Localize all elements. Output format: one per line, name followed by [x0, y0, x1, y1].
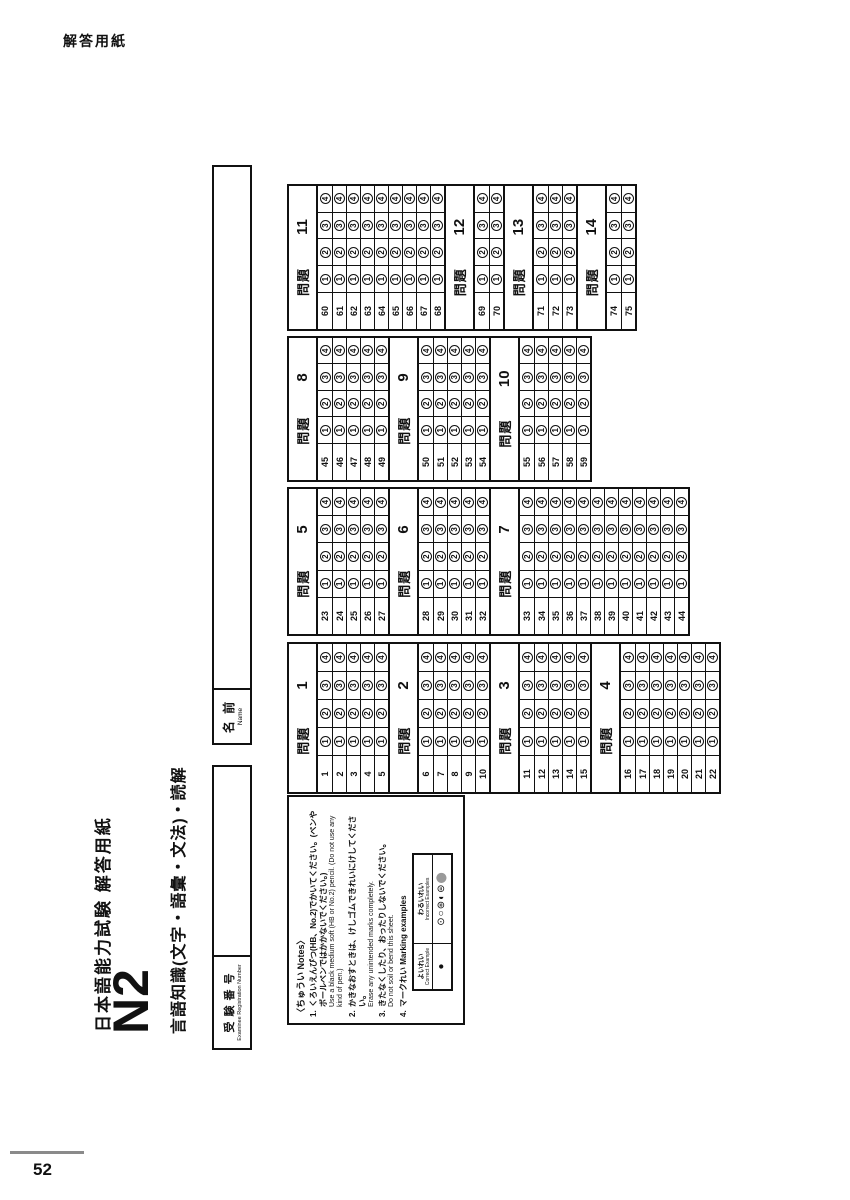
answer-bubble-q65-opt1[interactable]: 1	[389, 265, 402, 292]
answer-bubble-q2-opt4[interactable]: 4	[333, 644, 346, 671]
answer-bubble-q1-opt2[interactable]: 2	[318, 699, 332, 727]
answer-bubble-q16-opt3[interactable]: 3	[621, 671, 635, 699]
answer-bubble-q20-opt4[interactable]: 4	[678, 644, 691, 671]
answer-bubble-q32-opt4[interactable]: 4	[476, 489, 489, 515]
answer-bubble-q3-opt4[interactable]: 4	[347, 644, 360, 671]
answer-bubble-q55-opt3[interactable]: 3	[520, 364, 534, 391]
answer-bubble-q70-opt4[interactable]: 4	[490, 186, 503, 212]
answer-bubble-q26-opt4[interactable]: 4	[361, 489, 374, 515]
answer-bubble-q30-opt3[interactable]: 3	[448, 515, 461, 542]
answer-bubble-q32-opt2[interactable]: 2	[476, 543, 489, 570]
answer-bubble-q66-opt3[interactable]: 3	[403, 212, 416, 239]
answer-bubble-q50-opt2[interactable]: 2	[419, 390, 433, 417]
answer-bubble-q21-opt2[interactable]: 2	[692, 699, 705, 727]
answer-bubble-q29-opt4[interactable]: 4	[434, 489, 447, 515]
answer-bubble-q59-opt3[interactable]: 3	[577, 364, 590, 391]
answer-bubble-q71-opt3[interactable]: 3	[534, 212, 548, 239]
answer-bubble-q24-opt2[interactable]: 2	[333, 543, 346, 570]
answer-bubble-q71-opt2[interactable]: 2	[534, 239, 548, 266]
answer-bubble-q52-opt2[interactable]: 2	[448, 390, 461, 417]
answer-bubble-q45-opt3[interactable]: 3	[318, 364, 332, 391]
answer-bubble-q15-opt1[interactable]: 1	[577, 727, 590, 755]
answer-bubble-q68-opt1[interactable]: 1	[431, 265, 444, 292]
answer-bubble-q17-opt1[interactable]: 1	[636, 727, 649, 755]
answer-bubble-q4-opt4[interactable]: 4	[361, 644, 374, 671]
answer-bubble-q34-opt3[interactable]: 3	[535, 515, 548, 542]
answer-bubble-q41-opt2[interactable]: 2	[633, 543, 646, 570]
answer-bubble-q60-opt3[interactable]: 3	[318, 212, 332, 239]
answer-bubble-q74-opt4[interactable]: 4	[607, 186, 621, 212]
answer-bubble-q25-opt2[interactable]: 2	[347, 543, 360, 570]
answer-bubble-q66-opt2[interactable]: 2	[403, 239, 416, 266]
answer-bubble-q44-opt2[interactable]: 2	[675, 543, 688, 570]
answer-bubble-q32-opt1[interactable]: 1	[476, 570, 489, 597]
answer-bubble-q40-opt4[interactable]: 4	[619, 489, 632, 515]
answer-bubble-q45-opt1[interactable]: 1	[318, 417, 332, 444]
answer-bubble-q23-opt2[interactable]: 2	[318, 543, 332, 570]
answer-bubble-q5-opt3[interactable]: 3	[375, 671, 388, 699]
answer-bubble-q70-opt1[interactable]: 1	[490, 265, 503, 292]
answer-bubble-q42-opt3[interactable]: 3	[647, 515, 660, 542]
answer-bubble-q44-opt4[interactable]: 4	[675, 489, 688, 515]
answer-bubble-q23-opt3[interactable]: 3	[318, 515, 332, 542]
answer-bubble-q19-opt1[interactable]: 1	[664, 727, 677, 755]
answer-bubble-q34-opt1[interactable]: 1	[535, 570, 548, 597]
answer-bubble-q22-opt1[interactable]: 1	[706, 727, 719, 755]
answer-bubble-q18-opt3[interactable]: 3	[650, 671, 663, 699]
answer-bubble-q12-opt3[interactable]: 3	[535, 671, 548, 699]
answer-bubble-q75-opt3[interactable]: 3	[622, 212, 635, 239]
answer-bubble-q2-opt2[interactable]: 2	[333, 699, 346, 727]
answer-bubble-q5-opt4[interactable]: 4	[375, 644, 388, 671]
answer-bubble-q6-opt3[interactable]: 3	[419, 671, 433, 699]
answer-bubble-q18-opt2[interactable]: 2	[650, 699, 663, 727]
answer-bubble-q34-opt2[interactable]: 2	[535, 543, 548, 570]
answer-bubble-q74-opt1[interactable]: 1	[607, 265, 621, 292]
answer-bubble-q53-opt2[interactable]: 2	[462, 390, 475, 417]
answer-bubble-q63-opt3[interactable]: 3	[361, 212, 374, 239]
answer-bubble-q12-opt1[interactable]: 1	[535, 727, 548, 755]
answer-bubble-q55-opt4[interactable]: 4	[520, 338, 534, 364]
answer-bubble-q35-opt1[interactable]: 1	[549, 570, 562, 597]
answer-bubble-q73-opt4[interactable]: 4	[563, 186, 576, 212]
answer-bubble-q40-opt3[interactable]: 3	[619, 515, 632, 542]
answer-bubble-q49-opt2[interactable]: 2	[375, 390, 388, 417]
answer-bubble-q9-opt2[interactable]: 2	[462, 699, 475, 727]
answer-bubble-q26-opt3[interactable]: 3	[361, 515, 374, 542]
answer-bubble-q48-opt4[interactable]: 4	[361, 338, 374, 364]
answer-bubble-q73-opt2[interactable]: 2	[563, 239, 576, 266]
answer-bubble-q66-opt1[interactable]: 1	[403, 265, 416, 292]
answer-bubble-q42-opt1[interactable]: 1	[647, 570, 660, 597]
answer-bubble-q31-opt3[interactable]: 3	[462, 515, 475, 542]
answer-bubble-q35-opt4[interactable]: 4	[549, 489, 562, 515]
answer-bubble-q44-opt3[interactable]: 3	[675, 515, 688, 542]
answer-bubble-q69-opt1[interactable]: 1	[475, 265, 489, 292]
answer-bubble-q10-opt2[interactable]: 2	[476, 699, 489, 727]
answer-bubble-q73-opt1[interactable]: 1	[563, 265, 576, 292]
answer-bubble-q11-opt2[interactable]: 2	[520, 699, 534, 727]
answer-bubble-q25-opt4[interactable]: 4	[347, 489, 360, 515]
answer-bubble-q60-opt4[interactable]: 4	[318, 186, 332, 212]
answer-bubble-q16-opt1[interactable]: 1	[621, 727, 635, 755]
answer-bubble-q49-opt4[interactable]: 4	[375, 338, 388, 364]
answer-bubble-q22-opt3[interactable]: 3	[706, 671, 719, 699]
answer-bubble-q66-opt4[interactable]: 4	[403, 186, 416, 212]
answer-bubble-q67-opt4[interactable]: 4	[417, 186, 430, 212]
answer-bubble-q75-opt4[interactable]: 4	[622, 186, 635, 212]
answer-bubble-q58-opt4[interactable]: 4	[563, 338, 576, 364]
answer-bubble-q48-opt3[interactable]: 3	[361, 364, 374, 391]
answer-bubble-q26-opt2[interactable]: 2	[361, 543, 374, 570]
answer-bubble-q4-opt1[interactable]: 1	[361, 727, 374, 755]
answer-bubble-q63-opt1[interactable]: 1	[361, 265, 374, 292]
answer-bubble-q63-opt4[interactable]: 4	[361, 186, 374, 212]
answer-bubble-q34-opt4[interactable]: 4	[535, 489, 548, 515]
answer-bubble-q72-opt2[interactable]: 2	[549, 239, 562, 266]
answer-bubble-q2-opt1[interactable]: 1	[333, 727, 346, 755]
answer-bubble-q33-opt4[interactable]: 4	[520, 489, 534, 515]
answer-bubble-q56-opt2[interactable]: 2	[535, 390, 548, 417]
answer-bubble-q50-opt3[interactable]: 3	[419, 364, 433, 391]
answer-bubble-q69-opt4[interactable]: 4	[475, 186, 489, 212]
answer-bubble-q46-opt2[interactable]: 2	[333, 390, 346, 417]
answer-bubble-q69-opt3[interactable]: 3	[475, 212, 489, 239]
answer-bubble-q62-opt4[interactable]: 4	[347, 186, 360, 212]
answer-bubble-q10-opt3[interactable]: 3	[476, 671, 489, 699]
answer-bubble-q9-opt3[interactable]: 3	[462, 671, 475, 699]
answer-bubble-q62-opt3[interactable]: 3	[347, 212, 360, 239]
answer-bubble-q55-opt2[interactable]: 2	[520, 390, 534, 417]
answer-bubble-q71-opt1[interactable]: 1	[534, 265, 548, 292]
answer-bubble-q12-opt2[interactable]: 2	[535, 699, 548, 727]
answer-bubble-q52-opt3[interactable]: 3	[448, 364, 461, 391]
answer-bubble-q52-opt4[interactable]: 4	[448, 338, 461, 364]
answer-bubble-q26-opt1[interactable]: 1	[361, 570, 374, 597]
answer-bubble-q61-opt3[interactable]: 3	[333, 212, 346, 239]
answer-bubble-q6-opt2[interactable]: 2	[419, 699, 433, 727]
answer-bubble-q41-opt3[interactable]: 3	[633, 515, 646, 542]
answer-bubble-q38-opt4[interactable]: 4	[591, 489, 604, 515]
answer-bubble-q72-opt1[interactable]: 1	[549, 265, 562, 292]
answer-bubble-q8-opt2[interactable]: 2	[448, 699, 461, 727]
answer-bubble-q14-opt1[interactable]: 1	[563, 727, 576, 755]
answer-bubble-q46-opt1[interactable]: 1	[333, 417, 346, 444]
answer-bubble-q46-opt3[interactable]: 3	[333, 364, 346, 391]
answer-bubble-q53-opt3[interactable]: 3	[462, 364, 475, 391]
examinee-number-input[interactable]	[214, 767, 250, 955]
answer-bubble-q48-opt2[interactable]: 2	[361, 390, 374, 417]
answer-bubble-q19-opt2[interactable]: 2	[664, 699, 677, 727]
answer-bubble-q5-opt1[interactable]: 1	[375, 727, 388, 755]
answer-bubble-q9-opt4[interactable]: 4	[462, 644, 475, 671]
answer-bubble-q4-opt2[interactable]: 2	[361, 699, 374, 727]
answer-bubble-q8-opt1[interactable]: 1	[448, 727, 461, 755]
answer-bubble-q67-opt3[interactable]: 3	[417, 212, 430, 239]
answer-bubble-q40-opt2[interactable]: 2	[619, 543, 632, 570]
answer-bubble-q61-opt1[interactable]: 1	[333, 265, 346, 292]
answer-bubble-q14-opt4[interactable]: 4	[563, 644, 576, 671]
answer-bubble-q42-opt2[interactable]: 2	[647, 543, 660, 570]
answer-bubble-q18-opt4[interactable]: 4	[650, 644, 663, 671]
answer-bubble-q23-opt4[interactable]: 4	[318, 489, 332, 515]
answer-bubble-q70-opt3[interactable]: 3	[490, 212, 503, 239]
answer-bubble-q15-opt3[interactable]: 3	[577, 671, 590, 699]
answer-bubble-q68-opt3[interactable]: 3	[431, 212, 444, 239]
answer-bubble-q19-opt3[interactable]: 3	[664, 671, 677, 699]
answer-bubble-q36-opt4[interactable]: 4	[563, 489, 576, 515]
answer-bubble-q47-opt1[interactable]: 1	[347, 417, 360, 444]
answer-bubble-q42-opt4[interactable]: 4	[647, 489, 660, 515]
answer-bubble-q74-opt2[interactable]: 2	[607, 239, 621, 266]
answer-bubble-q57-opt4[interactable]: 4	[549, 338, 562, 364]
answer-bubble-q38-opt3[interactable]: 3	[591, 515, 604, 542]
answer-bubble-q56-opt4[interactable]: 4	[535, 338, 548, 364]
answer-bubble-q58-opt3[interactable]: 3	[563, 364, 576, 391]
answer-bubble-q7-opt4[interactable]: 4	[434, 644, 447, 671]
answer-bubble-q28-opt4[interactable]: 4	[419, 489, 433, 515]
answer-bubble-q36-opt3[interactable]: 3	[563, 515, 576, 542]
answer-bubble-q59-opt4[interactable]: 4	[577, 338, 590, 364]
answer-bubble-q59-opt2[interactable]: 2	[577, 390, 590, 417]
answer-bubble-q62-opt1[interactable]: 1	[347, 265, 360, 292]
answer-bubble-q2-opt3[interactable]: 3	[333, 671, 346, 699]
answer-bubble-q35-opt3[interactable]: 3	[549, 515, 562, 542]
answer-bubble-q72-opt3[interactable]: 3	[549, 212, 562, 239]
answer-bubble-q58-opt2[interactable]: 2	[563, 390, 576, 417]
answer-bubble-q51-opt3[interactable]: 3	[434, 364, 447, 391]
answer-bubble-q49-opt3[interactable]: 3	[375, 364, 388, 391]
answer-bubble-q10-opt4[interactable]: 4	[476, 644, 489, 671]
answer-bubble-q50-opt4[interactable]: 4	[419, 338, 433, 364]
answer-bubble-q64-opt4[interactable]: 4	[375, 186, 388, 212]
answer-bubble-q13-opt2[interactable]: 2	[549, 699, 562, 727]
answer-bubble-q28-opt1[interactable]: 1	[419, 570, 433, 597]
answer-bubble-q5-opt2[interactable]: 2	[375, 699, 388, 727]
answer-bubble-q12-opt4[interactable]: 4	[535, 644, 548, 671]
answer-bubble-q3-opt2[interactable]: 2	[347, 699, 360, 727]
answer-bubble-q27-opt3[interactable]: 3	[375, 515, 388, 542]
answer-bubble-q39-opt3[interactable]: 3	[605, 515, 618, 542]
answer-bubble-q1-opt3[interactable]: 3	[318, 671, 332, 699]
answer-bubble-q65-opt2[interactable]: 2	[389, 239, 402, 266]
answer-bubble-q1-opt1[interactable]: 1	[318, 727, 332, 755]
answer-bubble-q44-opt1[interactable]: 1	[675, 570, 688, 597]
answer-bubble-q3-opt1[interactable]: 1	[347, 727, 360, 755]
answer-bubble-q24-opt1[interactable]: 1	[333, 570, 346, 597]
answer-bubble-q11-opt1[interactable]: 1	[520, 727, 534, 755]
answer-bubble-q17-opt2[interactable]: 2	[636, 699, 649, 727]
answer-bubble-q38-opt2[interactable]: 2	[591, 543, 604, 570]
name-input[interactable]	[214, 167, 250, 688]
answer-bubble-q22-opt4[interactable]: 4	[706, 644, 719, 671]
answer-bubble-q30-opt1[interactable]: 1	[448, 570, 461, 597]
answer-bubble-q68-opt2[interactable]: 2	[431, 239, 444, 266]
answer-bubble-q39-opt2[interactable]: 2	[605, 543, 618, 570]
answer-bubble-q45-opt4[interactable]: 4	[318, 338, 332, 364]
answer-bubble-q57-opt3[interactable]: 3	[549, 364, 562, 391]
answer-bubble-q65-opt4[interactable]: 4	[389, 186, 402, 212]
answer-bubble-q25-opt1[interactable]: 1	[347, 570, 360, 597]
answer-bubble-q56-opt1[interactable]: 1	[535, 417, 548, 444]
answer-bubble-q37-opt4[interactable]: 4	[577, 489, 590, 515]
answer-bubble-q56-opt3[interactable]: 3	[535, 364, 548, 391]
answer-bubble-q33-opt3[interactable]: 3	[520, 515, 534, 542]
answer-bubble-q38-opt1[interactable]: 1	[591, 570, 604, 597]
answer-bubble-q62-opt2[interactable]: 2	[347, 239, 360, 266]
answer-bubble-q64-opt1[interactable]: 1	[375, 265, 388, 292]
answer-bubble-q14-opt3[interactable]: 3	[563, 671, 576, 699]
answer-bubble-q14-opt2[interactable]: 2	[563, 699, 576, 727]
answer-bubble-q71-opt4[interactable]: 4	[534, 186, 548, 212]
answer-bubble-q70-opt2[interactable]: 2	[490, 239, 503, 266]
answer-bubble-q51-opt4[interactable]: 4	[434, 338, 447, 364]
answer-bubble-q15-opt2[interactable]: 2	[577, 699, 590, 727]
answer-bubble-q8-opt4[interactable]: 4	[448, 644, 461, 671]
answer-bubble-q20-opt2[interactable]: 2	[678, 699, 691, 727]
answer-bubble-q7-opt3[interactable]: 3	[434, 671, 447, 699]
answer-bubble-q17-opt3[interactable]: 3	[636, 671, 649, 699]
answer-bubble-q32-opt3[interactable]: 3	[476, 515, 489, 542]
answer-bubble-q46-opt4[interactable]: 4	[333, 338, 346, 364]
answer-bubble-q25-opt3[interactable]: 3	[347, 515, 360, 542]
answer-bubble-q27-opt4[interactable]: 4	[375, 489, 388, 515]
answer-bubble-q37-opt2[interactable]: 2	[577, 543, 590, 570]
answer-bubble-q4-opt3[interactable]: 3	[361, 671, 374, 699]
answer-bubble-q57-opt1[interactable]: 1	[549, 417, 562, 444]
answer-bubble-q58-opt1[interactable]: 1	[563, 417, 576, 444]
answer-bubble-q49-opt1[interactable]: 1	[375, 417, 388, 444]
answer-bubble-q13-opt3[interactable]: 3	[549, 671, 562, 699]
answer-bubble-q20-opt3[interactable]: 3	[678, 671, 691, 699]
answer-bubble-q60-opt1[interactable]: 1	[318, 265, 332, 292]
answer-bubble-q47-opt4[interactable]: 4	[347, 338, 360, 364]
answer-bubble-q60-opt2[interactable]: 2	[318, 239, 332, 266]
answer-bubble-q50-opt1[interactable]: 1	[419, 417, 433, 444]
answer-bubble-q59-opt1[interactable]: 1	[577, 417, 590, 444]
answer-bubble-q41-opt4[interactable]: 4	[633, 489, 646, 515]
answer-bubble-q31-opt4[interactable]: 4	[462, 489, 475, 515]
answer-bubble-q51-opt1[interactable]: 1	[434, 417, 447, 444]
answer-bubble-q51-opt2[interactable]: 2	[434, 390, 447, 417]
answer-bubble-q61-opt4[interactable]: 4	[333, 186, 346, 212]
answer-bubble-q20-opt1[interactable]: 1	[678, 727, 691, 755]
answer-bubble-q47-opt2[interactable]: 2	[347, 390, 360, 417]
answer-bubble-q31-opt1[interactable]: 1	[462, 570, 475, 597]
answer-bubble-q11-opt3[interactable]: 3	[520, 671, 534, 699]
answer-bubble-q10-opt1[interactable]: 1	[476, 727, 489, 755]
answer-bubble-q43-opt2[interactable]: 2	[661, 543, 674, 570]
answer-bubble-q29-opt1[interactable]: 1	[434, 570, 447, 597]
answer-bubble-q47-opt3[interactable]: 3	[347, 364, 360, 391]
answer-bubble-q13-opt4[interactable]: 4	[549, 644, 562, 671]
answer-bubble-q61-opt2[interactable]: 2	[333, 239, 346, 266]
answer-bubble-q23-opt1[interactable]: 1	[318, 570, 332, 597]
answer-bubble-q24-opt3[interactable]: 3	[333, 515, 346, 542]
answer-bubble-q43-opt1[interactable]: 1	[661, 570, 674, 597]
answer-bubble-q13-opt1[interactable]: 1	[549, 727, 562, 755]
answer-bubble-q74-opt3[interactable]: 3	[607, 212, 621, 239]
answer-bubble-q9-opt1[interactable]: 1	[462, 727, 475, 755]
answer-bubble-q22-opt2[interactable]: 2	[706, 699, 719, 727]
answer-bubble-q53-opt4[interactable]: 4	[462, 338, 475, 364]
answer-bubble-q39-opt4[interactable]: 4	[605, 489, 618, 515]
answer-bubble-q67-opt1[interactable]: 1	[417, 265, 430, 292]
answer-bubble-q7-opt2[interactable]: 2	[434, 699, 447, 727]
answer-bubble-q28-opt3[interactable]: 3	[419, 515, 433, 542]
answer-bubble-q28-opt2[interactable]: 2	[419, 543, 433, 570]
answer-bubble-q27-opt2[interactable]: 2	[375, 543, 388, 570]
answer-bubble-q11-opt4[interactable]: 4	[520, 644, 534, 671]
answer-bubble-q27-opt1[interactable]: 1	[375, 570, 388, 597]
answer-bubble-q29-opt2[interactable]: 2	[434, 543, 447, 570]
answer-bubble-q6-opt1[interactable]: 1	[419, 727, 433, 755]
answer-bubble-q36-opt1[interactable]: 1	[563, 570, 576, 597]
answer-bubble-q15-opt4[interactable]: 4	[577, 644, 590, 671]
answer-bubble-q43-opt3[interactable]: 3	[661, 515, 674, 542]
answer-bubble-q16-opt4[interactable]: 4	[621, 644, 635, 671]
answer-bubble-q24-opt4[interactable]: 4	[333, 489, 346, 515]
answer-bubble-q17-opt4[interactable]: 4	[636, 644, 649, 671]
answer-bubble-q52-opt1[interactable]: 1	[448, 417, 461, 444]
answer-bubble-q7-opt1[interactable]: 1	[434, 727, 447, 755]
answer-bubble-q29-opt3[interactable]: 3	[434, 515, 447, 542]
answer-bubble-q69-opt2[interactable]: 2	[475, 239, 489, 266]
answer-bubble-q19-opt4[interactable]: 4	[664, 644, 677, 671]
answer-bubble-q21-opt3[interactable]: 3	[692, 671, 705, 699]
answer-bubble-q37-opt1[interactable]: 1	[577, 570, 590, 597]
answer-bubble-q37-opt3[interactable]: 3	[577, 515, 590, 542]
answer-bubble-q30-opt4[interactable]: 4	[448, 489, 461, 515]
answer-bubble-q73-opt3[interactable]: 3	[563, 212, 576, 239]
answer-bubble-q67-opt2[interactable]: 2	[417, 239, 430, 266]
answer-bubble-q39-opt1[interactable]: 1	[605, 570, 618, 597]
answer-bubble-q57-opt2[interactable]: 2	[549, 390, 562, 417]
answer-bubble-q33-opt1[interactable]: 1	[520, 570, 534, 597]
answer-bubble-q65-opt3[interactable]: 3	[389, 212, 402, 239]
answer-bubble-q72-opt4[interactable]: 4	[549, 186, 562, 212]
answer-bubble-q54-opt4[interactable]: 4	[476, 338, 489, 364]
answer-bubble-q55-opt1[interactable]: 1	[520, 417, 534, 444]
answer-bubble-q18-opt1[interactable]: 1	[650, 727, 663, 755]
answer-bubble-q54-opt3[interactable]: 3	[476, 364, 489, 391]
answer-bubble-q63-opt2[interactable]: 2	[361, 239, 374, 266]
answer-bubble-q3-opt3[interactable]: 3	[347, 671, 360, 699]
answer-bubble-q36-opt2[interactable]: 2	[563, 543, 576, 570]
answer-bubble-q75-opt1[interactable]: 1	[622, 265, 635, 292]
answer-bubble-q31-opt2[interactable]: 2	[462, 543, 475, 570]
answer-bubble-q30-opt2[interactable]: 2	[448, 543, 461, 570]
answer-bubble-q16-opt2[interactable]: 2	[621, 699, 635, 727]
answer-bubble-q43-opt4[interactable]: 4	[661, 489, 674, 515]
answer-bubble-q54-opt2[interactable]: 2	[476, 390, 489, 417]
answer-bubble-q21-opt1[interactable]: 1	[692, 727, 705, 755]
answer-bubble-q35-opt2[interactable]: 2	[549, 543, 562, 570]
answer-bubble-q6-opt4[interactable]: 4	[419, 644, 433, 671]
answer-bubble-q64-opt2[interactable]: 2	[375, 239, 388, 266]
answer-bubble-q33-opt2[interactable]: 2	[520, 543, 534, 570]
answer-bubble-q64-opt3[interactable]: 3	[375, 212, 388, 239]
answer-bubble-q53-opt1[interactable]: 1	[462, 417, 475, 444]
answer-bubble-q41-opt1[interactable]: 1	[633, 570, 646, 597]
answer-bubble-q68-opt4[interactable]: 4	[431, 186, 444, 212]
answer-bubble-q45-opt2[interactable]: 2	[318, 390, 332, 417]
answer-bubble-q48-opt1[interactable]: 1	[361, 417, 374, 444]
answer-bubble-q21-opt4[interactable]: 4	[692, 644, 705, 671]
answer-bubble-q54-opt1[interactable]: 1	[476, 417, 489, 444]
answer-bubble-q75-opt2[interactable]: 2	[622, 239, 635, 266]
answer-bubble-q40-opt1[interactable]: 1	[619, 570, 632, 597]
